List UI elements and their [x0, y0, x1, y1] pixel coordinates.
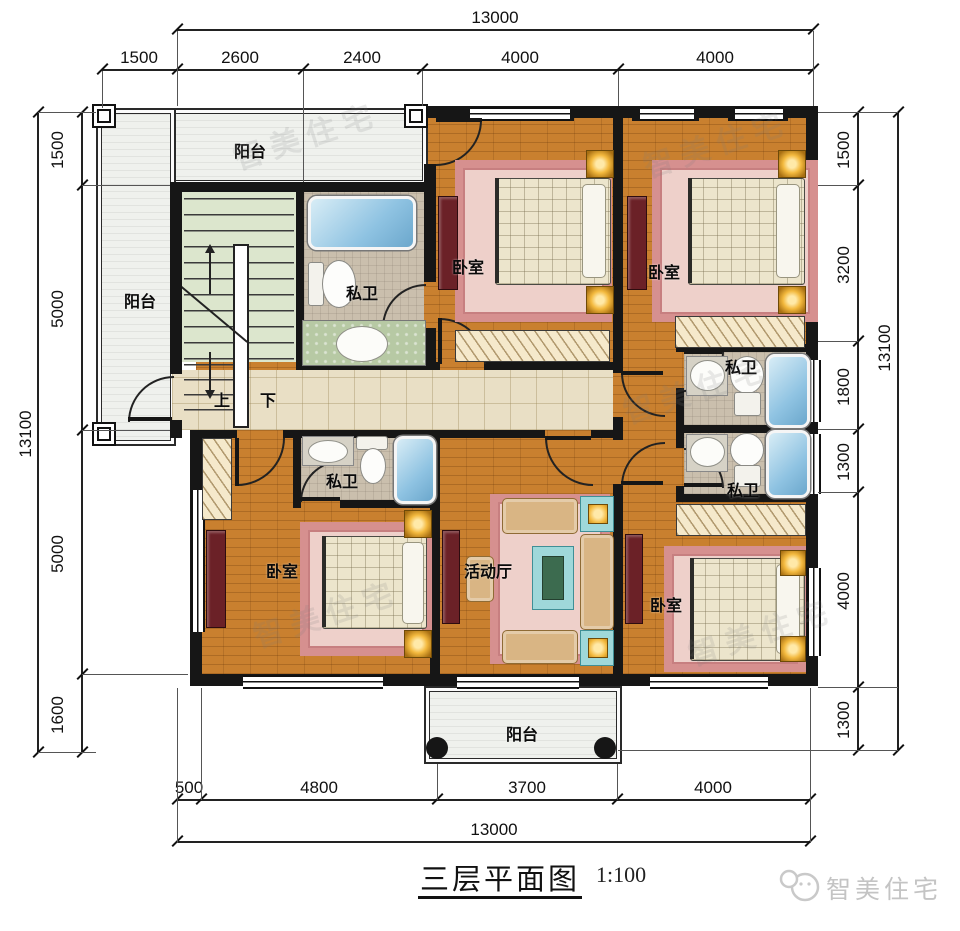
tv-cabinet [206, 530, 226, 628]
wall-bath-tl-east-mid [424, 164, 436, 282]
column [92, 104, 116, 128]
extension-line [818, 492, 858, 493]
bathtub [394, 436, 436, 504]
door-leaf [436, 118, 482, 122]
sliding-door-balcony [457, 675, 579, 689]
column-round [594, 737, 616, 759]
door-leaf [621, 371, 663, 375]
dim-line-right-overall [897, 112, 899, 750]
nightstand-lamp [586, 286, 614, 314]
table-lamp [588, 504, 608, 524]
wall-bath-bl-south-1 [293, 500, 300, 508]
room-label-bedroom-bl: 卧室 [258, 558, 306, 582]
wardrobe [675, 316, 805, 348]
sink [308, 440, 348, 463]
dim-label: 500 [164, 778, 214, 798]
door-leaf [300, 497, 340, 501]
stair-arrow-up-line [209, 252, 211, 294]
extension-line [818, 185, 858, 186]
column [404, 104, 428, 128]
extension-line [82, 430, 170, 431]
dim-label: 1300 [834, 690, 854, 750]
dim-label: 13100 [16, 404, 36, 464]
dim-label: 1800 [834, 357, 854, 417]
extension-line [177, 688, 178, 843]
extension-line [38, 752, 96, 753]
nightstand-lamp [778, 150, 806, 178]
bed-foot [688, 178, 692, 283]
door-leaf [545, 436, 591, 440]
tv-cabinet [625, 534, 643, 624]
column-round [426, 737, 448, 759]
dim-line-bottom-segments [177, 799, 811, 801]
nightstand-lamp [780, 550, 806, 576]
extension-line [82, 674, 188, 675]
dim-label: 1500 [48, 120, 68, 180]
nightstand-lamp [586, 150, 614, 178]
window-south-2 [650, 675, 768, 689]
wardrobe [202, 438, 232, 520]
extension-line [82, 185, 170, 186]
wall-corridor-north-east [484, 362, 613, 370]
extension-line [201, 688, 202, 800]
room-label-balcony-bottom: 阳台 [492, 721, 552, 745]
dim-label: 5000 [48, 524, 68, 584]
dim-label: 4800 [289, 778, 349, 798]
scale-label: 1:100 [596, 862, 646, 888]
extension-line [810, 688, 811, 843]
sofa [502, 498, 578, 534]
dim-label: 4000 [834, 561, 854, 621]
dim-label: 5000 [48, 279, 68, 339]
nightstand-lamp [404, 510, 432, 538]
extension-line [813, 31, 814, 106]
door-leaf [684, 483, 722, 487]
bathtub [308, 196, 416, 250]
stairs-down-label: 下 [252, 387, 284, 411]
room-label-bath-rl: 私卫 [719, 477, 767, 501]
sofa [502, 630, 578, 664]
room-label-balcony-left: 阳台 [110, 288, 170, 312]
sofa [580, 534, 614, 630]
wall-west-stair [170, 182, 182, 374]
dim-label: 13000 [455, 8, 535, 28]
room-label-bedroom-tr: 卧室 [640, 259, 688, 283]
dim-label: 1300 [834, 432, 854, 492]
tv-cabinet [442, 530, 460, 624]
extension-line [818, 341, 858, 342]
wardrobe [455, 330, 610, 362]
brand-icon [778, 866, 822, 911]
extension-line [422, 71, 423, 106]
stair-arrow-up-icon [205, 244, 215, 253]
dim-label: 13000 [454, 820, 534, 840]
dim-line-bottom-overall [177, 841, 811, 843]
window-north-1 [470, 107, 570, 121]
wall-spine-lower [613, 484, 623, 674]
nightstand-lamp [778, 286, 806, 314]
room-label-bath-bl: 私卫 [318, 468, 366, 492]
stairs-up-label: 上 [206, 387, 238, 411]
extension-line [617, 764, 618, 800]
sink [690, 437, 725, 467]
brand-name: 智美住宅 [826, 870, 942, 906]
pillow [582, 184, 606, 278]
wall-corridor-south-1 [190, 430, 237, 438]
wall-spine-upper [613, 106, 623, 373]
extension-line [437, 764, 438, 800]
table-lamp [588, 638, 608, 658]
door-leaf [438, 318, 442, 364]
door-leaf [235, 438, 239, 486]
window-north-2 [640, 107, 694, 121]
extension-line [177, 31, 178, 106]
wall-corridor-south-3 [591, 430, 613, 438]
dim-line-top-segments [102, 69, 813, 71]
room-label-bedroom-tm: 卧室 [444, 254, 492, 278]
extension-line [618, 750, 898, 751]
wall-stair-north [170, 182, 436, 192]
extension-line [618, 71, 619, 106]
dim-label: 13100 [875, 318, 895, 378]
column [92, 422, 116, 446]
dim-line-left-overall [37, 112, 39, 752]
room-label-bath-tl: 私卫 [338, 280, 386, 304]
dim-label: 3700 [497, 778, 557, 798]
toilet-bowl [730, 433, 764, 467]
pillow [402, 542, 424, 624]
window-south-1 [243, 675, 383, 689]
extension-line [818, 429, 858, 430]
title-underline [418, 896, 582, 899]
bathtub [766, 430, 810, 498]
wall-spine-mid [613, 417, 623, 440]
dim-label: 1600 [48, 685, 68, 745]
extension-line [38, 112, 96, 113]
wall-west-stair-stub [170, 420, 182, 438]
sink [336, 326, 388, 362]
dim-label: 4000 [685, 48, 745, 68]
bed-foot [495, 178, 499, 283]
room-label-bedroom-br: 卧室 [642, 592, 690, 616]
table-plant [542, 556, 564, 600]
dim-label: 2600 [210, 48, 270, 68]
nightstand-lamp [404, 630, 432, 658]
floor-plan-page: 阳台 阳台 阳台 私卫 私卫 私卫 私卫 卧室 卧室 卧室 卧室 活动厅 上 下… [0, 0, 960, 931]
bathtub [766, 354, 810, 428]
dim-label: 4000 [683, 778, 743, 798]
dim-label: 1500 [109, 48, 169, 68]
dim-line-top-overall [177, 29, 813, 31]
dim-label: 4000 [490, 48, 550, 68]
extension-line [818, 687, 898, 688]
pillow [776, 184, 800, 278]
wardrobe [676, 504, 806, 536]
room-label-hall: 活动厅 [460, 558, 516, 582]
page-title: 三层平面图 [420, 856, 580, 898]
dim-label: 2400 [332, 48, 392, 68]
stair-arrow-down-line [209, 352, 211, 390]
dim-label: 1500 [834, 120, 854, 180]
extension-line [818, 112, 898, 113]
dim-label: 3200 [834, 235, 854, 295]
door-leaf [128, 417, 172, 421]
extension-line [102, 71, 103, 108]
door-leaf [621, 481, 663, 485]
